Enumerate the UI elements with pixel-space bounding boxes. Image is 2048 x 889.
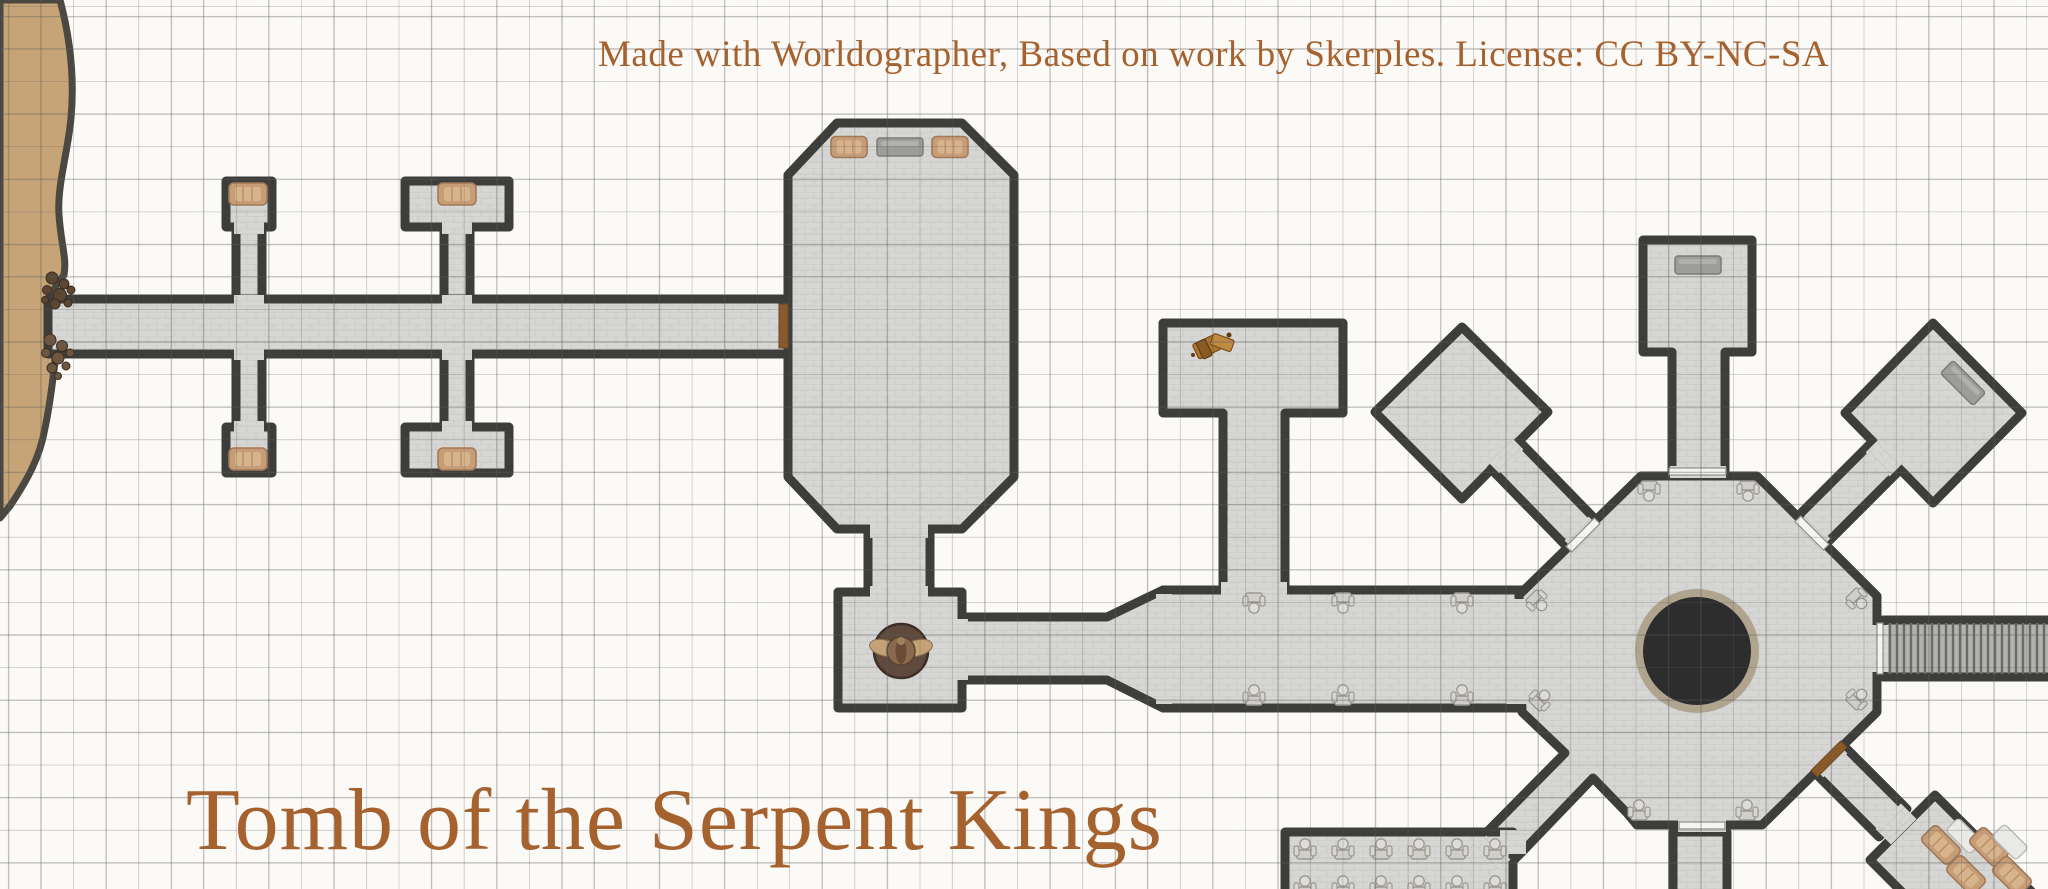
debris-room: [1163, 323, 1343, 588]
sarcophagus-icon: [229, 448, 267, 470]
east-corridor: [962, 590, 1163, 708]
sarcophagus-icon: [438, 183, 476, 205]
stone-door-south: [1679, 822, 1725, 829]
credit-line: Made with Worldographer, Based on work b…: [598, 33, 1829, 76]
altar-room-north: [1643, 240, 1752, 472]
sarcophagus-icon: [831, 137, 867, 158]
hillside-cliff: [0, 0, 72, 518]
stone-door-north: [1669, 468, 1726, 475]
stone-door-stairs: [1877, 623, 1883, 674]
grand-tomb-hall: [788, 123, 1014, 529]
dungeon-map-svg: [0, 0, 2048, 889]
entry-corridor: [48, 299, 788, 354]
niche-corridor-nw: [236, 227, 262, 303]
sarcophagus-icon: [229, 183, 267, 205]
stone-altar-icon: [1675, 256, 1721, 274]
sarcophagus-icon: [438, 448, 476, 470]
stone-altar-icon: [877, 138, 923, 156]
map-page: Made with Worldographer, Based on work b…: [0, 0, 2048, 889]
wooden-door-west: [779, 304, 788, 348]
medallion-corridor: [868, 529, 930, 592]
statue-gallery-south: [1285, 832, 1513, 889]
south-exit-corridor: [1673, 832, 1727, 889]
niche-corridor-sw: [236, 352, 262, 428]
sarcophagus-icon: [932, 137, 968, 158]
niche-corridor-se: [444, 352, 470, 428]
page-title: Tomb of the Serpent Kings: [186, 770, 1163, 871]
niche-corridor-ne: [444, 227, 470, 303]
pit-icon: [1635, 589, 1759, 713]
